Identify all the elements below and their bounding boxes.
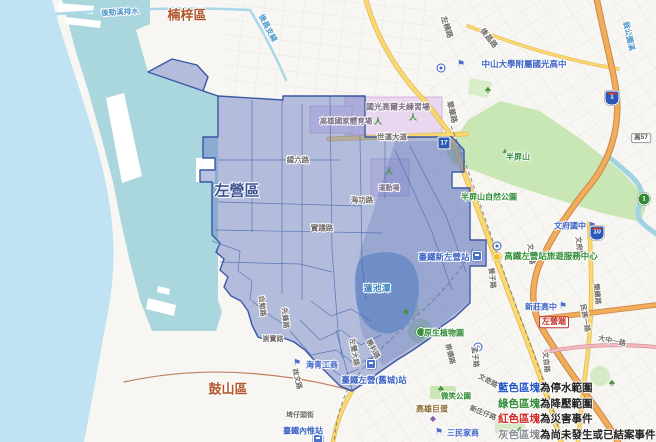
legend-description: 為尚未發生或已結案事件 xyxy=(540,429,656,441)
legend-description: 為降壓範圍 xyxy=(540,398,593,410)
legend-description: 為停水範圍 xyxy=(540,382,593,394)
legend-line: 綠色區塊為降壓範圍 xyxy=(498,397,656,413)
map-base xyxy=(0,0,656,442)
smile-park-area xyxy=(430,386,456,399)
legend-line: 紅色區塊為災害事件 xyxy=(498,412,656,428)
legend-color-term: 藍色區塊 xyxy=(498,382,540,394)
map-canvas[interactable]: ⚑⚑⚑⚑⚑♣♣♣♣♣▲人人人◆110171 楠梓區左營區鼓山區後勁溪排水後昌支線… xyxy=(0,0,656,442)
legend-description: 為災害事件 xyxy=(540,413,593,425)
legend-line: 灰色區塊為尚未發生或已結案事件 xyxy=(498,428,656,442)
map-legend: 藍色區塊為停水範圍綠色區塊為降壓範圍紅色區塊為災害事件灰色區塊為尚未發生或已結案… xyxy=(498,381,656,442)
legend-line: 藍色區塊為停水範圍 xyxy=(498,381,656,397)
legend-color-term: 灰色區塊 xyxy=(498,429,540,441)
legend-color-term: 紅色區塊 xyxy=(498,413,540,425)
legend-color-term: 綠色區塊 xyxy=(498,398,540,410)
